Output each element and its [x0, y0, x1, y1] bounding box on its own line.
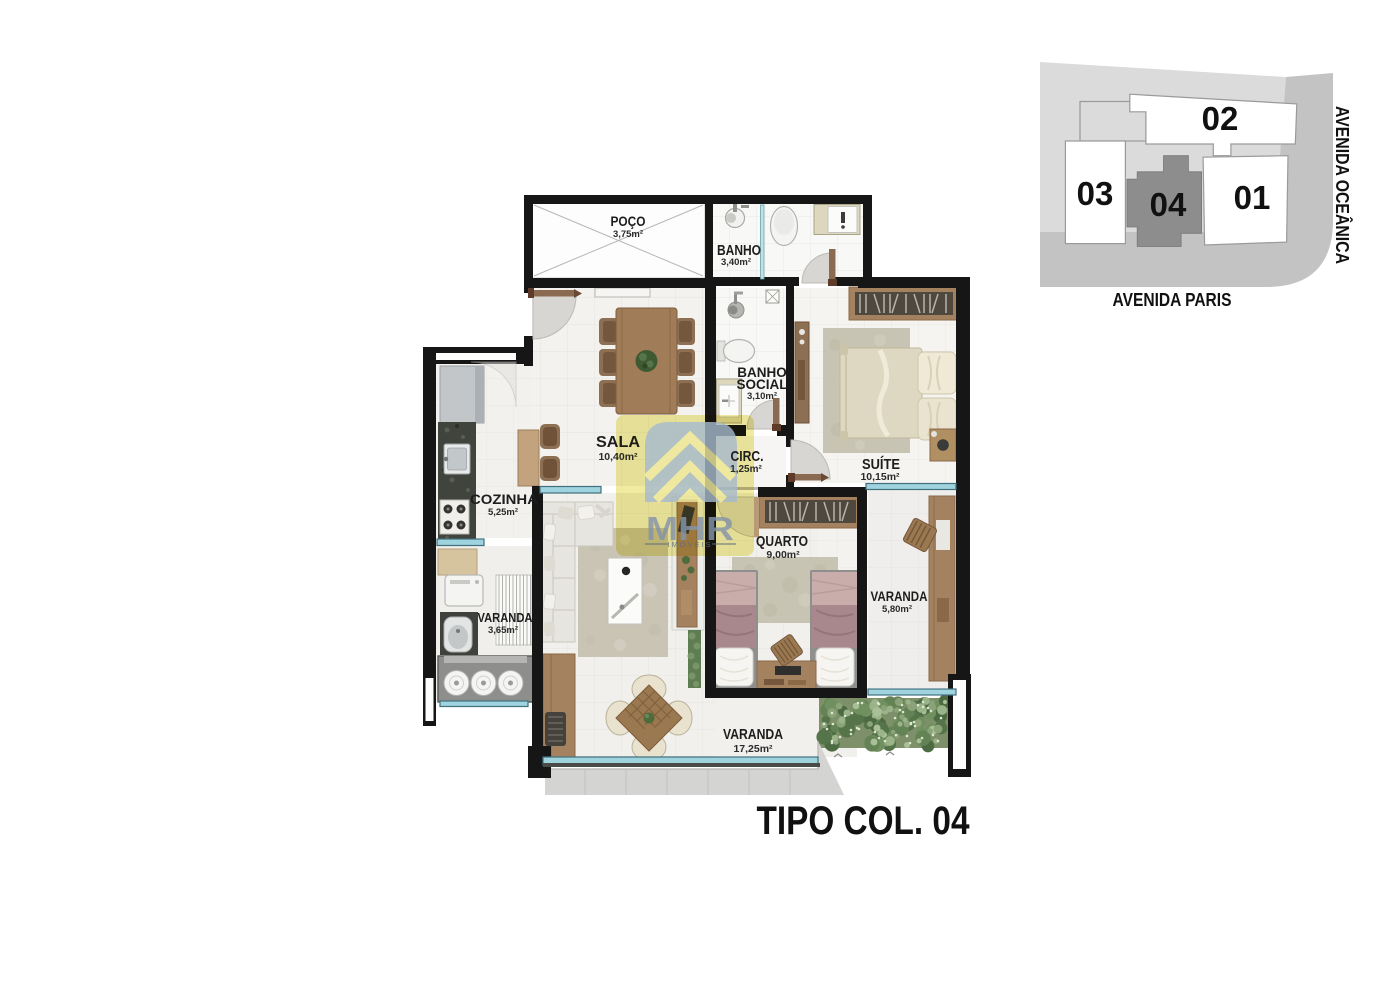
- svg-text:AVENIDA OCEÂNICA: AVENIDA OCEÂNICA: [1332, 106, 1353, 264]
- svg-text:17,25m²: 17,25m²: [733, 743, 773, 755]
- svg-text:03: 03: [1077, 175, 1114, 212]
- svg-text:CIRC.: CIRC.: [731, 448, 764, 465]
- svg-text:9,00m²: 9,00m²: [766, 549, 800, 561]
- svg-text:IMÓVEIS: IMÓVEIS: [667, 540, 712, 549]
- svg-text:01: 01: [1234, 179, 1271, 216]
- svg-text:SOCIAL: SOCIAL: [736, 377, 787, 392]
- svg-text:POÇO: POÇO: [611, 214, 646, 229]
- svg-text:3,10m²: 3,10m²: [747, 391, 777, 402]
- svg-text:VARANDA: VARANDA: [478, 610, 534, 625]
- svg-text:3,75m²: 3,75m²: [613, 229, 643, 240]
- svg-text:VARANDA: VARANDA: [871, 589, 928, 604]
- svg-text:3,40m²: 3,40m²: [721, 257, 751, 268]
- svg-text:10,15m²: 10,15m²: [860, 471, 900, 483]
- svg-text:04: 04: [1150, 186, 1187, 223]
- svg-text:AVENIDA PARIS: AVENIDA PARIS: [1113, 290, 1232, 310]
- svg-text:5,25m²: 5,25m²: [488, 507, 518, 518]
- svg-text:3,65m²: 3,65m²: [488, 625, 518, 636]
- svg-text:5,80m²: 5,80m²: [882, 604, 912, 615]
- svg-text:TIPO COL. 04: TIPO COL. 04: [757, 799, 971, 843]
- svg-text:1,25m²: 1,25m²: [730, 464, 762, 475]
- svg-text:QUARTO: QUARTO: [756, 533, 808, 550]
- svg-text:02: 02: [1202, 100, 1239, 137]
- svg-text:VARANDA: VARANDA: [723, 727, 783, 743]
- svg-text:COZINHA: COZINHA: [470, 491, 538, 507]
